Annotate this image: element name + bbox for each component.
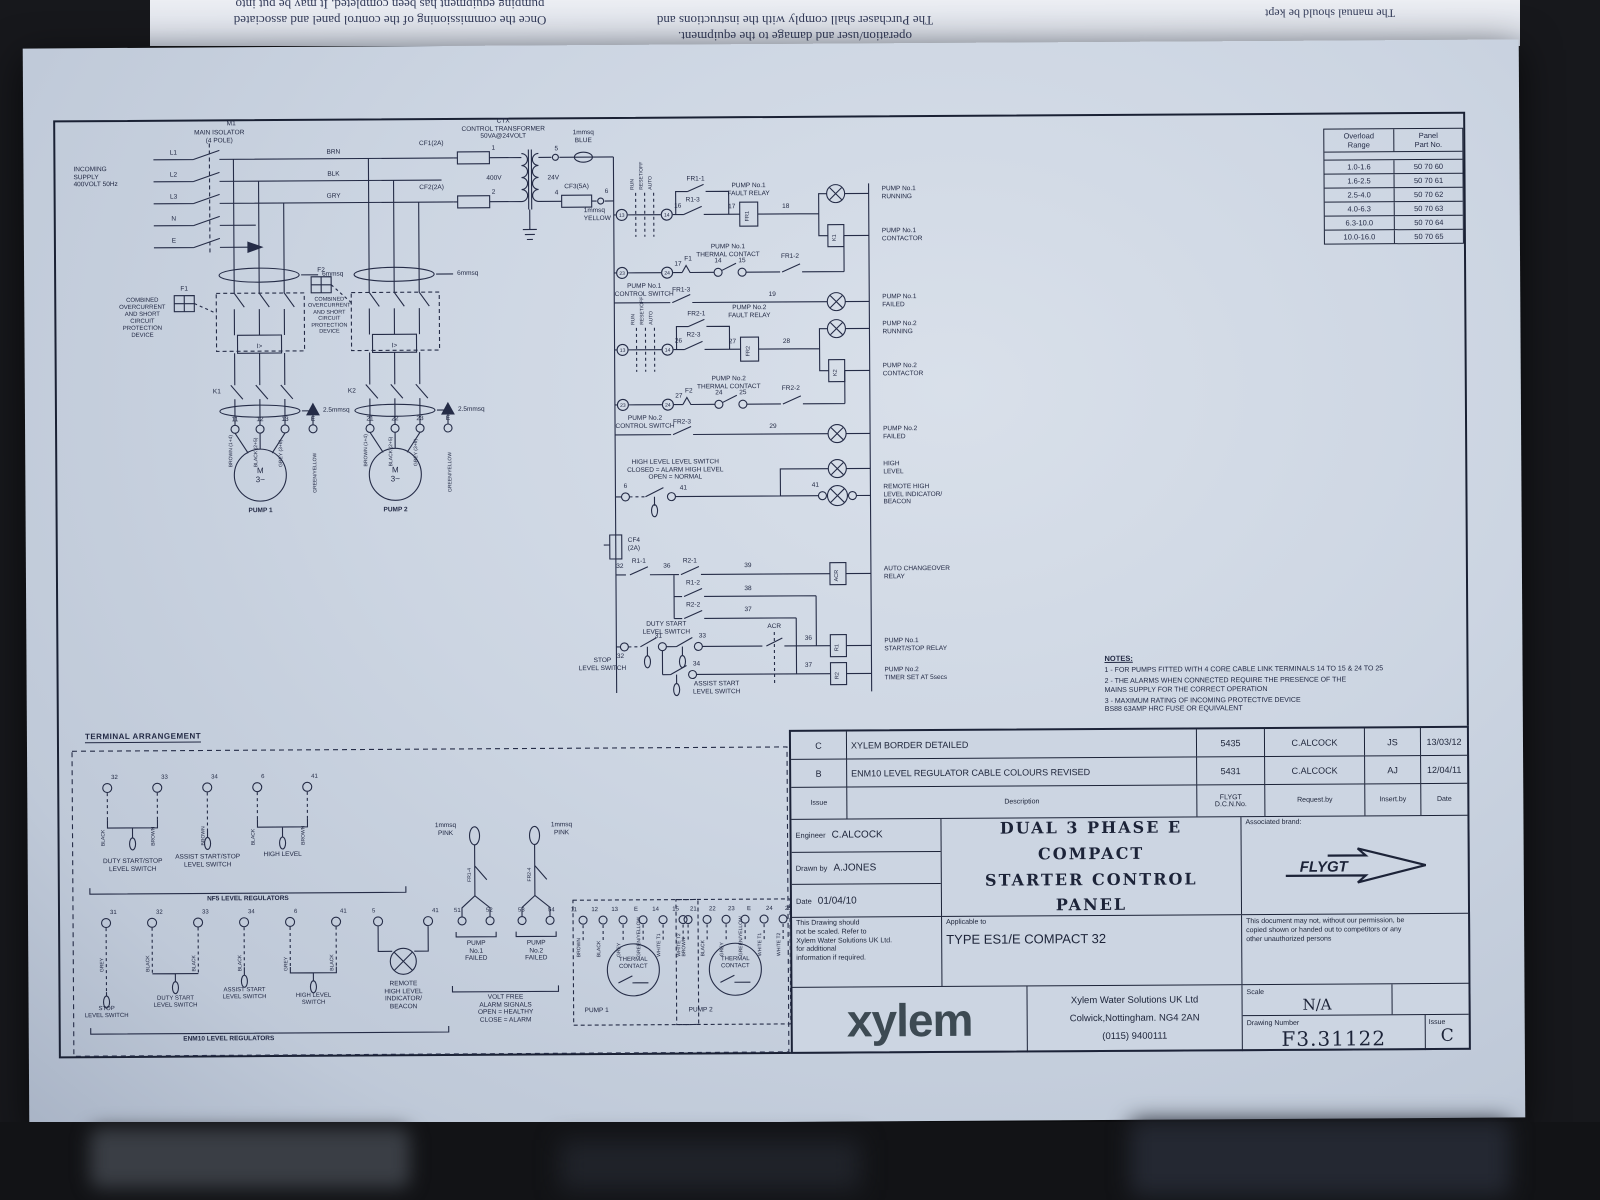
wire-number: 41 (812, 482, 820, 489)
wire-number: 32 (616, 563, 624, 570)
ta-color: BLACK (100, 829, 106, 846)
core-color: BROWN (1+4) (228, 435, 234, 468)
line-l3: L3 (170, 194, 178, 201)
switch-terminal: 14 (665, 348, 671, 354)
wire-number: 36 (805, 635, 813, 642)
cable-size-label: 6mmsq (322, 271, 343, 279)
revision-header-row: Issue Description FLYGT D.C.N.No. Reques… (791, 784, 1467, 820)
yellow-wire-label: 1mmsq YELLOW (584, 207, 611, 222)
ta-color: BROWN (681, 937, 687, 957)
line-l1: L1 (170, 150, 178, 157)
supply-lines (153, 149, 454, 248)
ta-terminal: 32 (156, 910, 163, 916)
output-pump2-running: PUMP No.2 RUNNING (882, 320, 916, 336)
motor-symbol-label: M 3~ (256, 466, 265, 485)
address-line2: Colwick,Nottingham. NG4 2AN (1070, 1009, 1200, 1028)
overload-range: 1.6-2.5 (1325, 174, 1394, 187)
overload-range: 4.0-6.3 (1325, 202, 1394, 215)
company-address-cell: Xylem Water Solutions UK Ltd Colwick,Not… (1027, 985, 1242, 1052)
cable-size-label: 2.5mmsq (323, 407, 350, 415)
output-pump1-failed: PUMP No.1 FAILED (882, 293, 916, 309)
switch-terminal: 23 (620, 403, 626, 409)
high-level-switch-label: HIGH LEVEL SWITCH (296, 993, 331, 1007)
ta-color: BLACK (596, 940, 602, 957)
ta-nf5-group (89, 782, 406, 894)
header-description: Description (847, 785, 1197, 818)
desk-object (90, 1128, 410, 1188)
float-switch-drop (652, 505, 658, 517)
output-pump2-timer: PUMP No.2 TIMER SET AT 5secs (885, 666, 948, 682)
selector-run: RUN (630, 314, 636, 325)
wire-number: 36 (663, 563, 671, 570)
wire-number: 34 (693, 660, 701, 667)
rev-insert-by: AJ (1365, 756, 1421, 783)
associated-brand-cell: Associated brand: FLYGT (1241, 816, 1468, 914)
output-high-level: HIGH LEVEL (883, 460, 903, 475)
core-color: BLACK (2+5) (388, 436, 394, 466)
wire-number: 16 (674, 203, 682, 210)
overload-part: 50 70 64 (1394, 216, 1463, 229)
panel-title-line1: DUAL 3 PHASE E COMPACT (945, 817, 1236, 867)
core-color: GREEN/YELLOW (312, 452, 318, 492)
fuse-cf1 (457, 152, 489, 164)
ta-color: WHITE T1 (757, 933, 763, 956)
engineer-label: Engineer (796, 831, 826, 840)
cable-size-label: 6mmsq (457, 270, 478, 278)
coil-fr2: FR2 (746, 346, 752, 356)
pump2-plug-label: PUMP 2 (689, 1006, 713, 1014)
pump2-failed-voltfree-label: PUMP No.2 FAILED (525, 939, 548, 962)
ctx-wiring (453, 149, 614, 240)
wire-number: 26 (675, 338, 683, 345)
terminal-arrangement-heading: TERMINAL ARRANGEMENT (85, 732, 201, 744)
fuse-cf3-label: CF3(5A) (564, 183, 589, 191)
ta-terminal: 51 (454, 908, 461, 914)
contact-tag: FR1-3 (672, 287, 690, 294)
wire-number: 18 (782, 203, 790, 210)
scale-label: Scale (1246, 989, 1264, 996)
ta-enclosure (72, 747, 789, 1056)
ta-terminal: 33 (161, 775, 168, 781)
date-value: 01/04/10 (818, 895, 857, 906)
incoming-supply-label: INCOMING SUPPLY 400VOLT 50Hz (73, 166, 117, 189)
ta-terminal: 13 (611, 907, 618, 913)
overload-row: 6.3-10.050 70 64 (1325, 215, 1463, 230)
rev-dcn: 5431 (1197, 757, 1265, 784)
primary-voltage: 400V (486, 175, 502, 182)
permission-note: This document may not, without our permi… (1242, 914, 1468, 984)
overload-header-range: Overload Range (1324, 129, 1393, 151)
overload-range: 6.3-10.0 (1325, 216, 1394, 229)
contact-tag: FR1-2 (781, 253, 799, 260)
high-level-label: HIGH LEVEL (263, 851, 301, 859)
nf5-regulators-label: NF5 LEVEL REGULATORS (207, 895, 289, 903)
selector-run: RUN (630, 179, 636, 190)
footer-row: xylem Xylem Water Solutions UK Ltd Colwi… (792, 984, 1468, 1054)
ta-color: BLACK (237, 954, 243, 971)
issue-cell: Issue C (1426, 1015, 1469, 1051)
overload-part: 50 70 65 (1394, 230, 1463, 243)
terminal-number: 4 (555, 189, 559, 196)
terminal-number: 21 (366, 415, 374, 422)
secondary-voltage: 24V (547, 174, 559, 181)
contact-tag: FR2-3 (673, 419, 691, 426)
ta-color: BLACK (700, 939, 706, 956)
applicable-to-value: TYPE ES1/E COMPACT 32 (946, 930, 1237, 947)
core-color: BROWN (1+4) (363, 434, 369, 467)
ta-color: BROWN (576, 938, 582, 958)
assist-start-switch-label: ASSIST START LEVEL SWITCH (223, 987, 267, 1001)
ta-color: BLACK (191, 954, 197, 971)
wire-color-gry: GRY (327, 193, 342, 200)
pink-wire-label: 1mmsq PINK (551, 821, 572, 836)
ta-terminal: 41 (311, 774, 318, 780)
output-pump2-contactor: PUMP No.2 CONTACTOR (883, 362, 924, 378)
associated-brand-label: Associated brand: (1245, 818, 1463, 826)
scale-value: N/A (1247, 995, 1388, 1014)
output-pump1-running: PUMP No.1 RUNNING (882, 185, 916, 201)
contact-tag: FR2-2 (782, 385, 800, 392)
rung-start-stop (616, 636, 871, 675)
rev-date: 12/04/11 (1421, 756, 1467, 783)
terminal-number: 12 (256, 416, 264, 423)
flipped-line: The manual should be kept (1265, 6, 1395, 20)
address-line3: (0115) 9400111 (1070, 1027, 1200, 1046)
switch-terminal: 14 (664, 213, 670, 219)
coil-r2: R2 (835, 672, 841, 679)
float-switch-drop (674, 684, 680, 696)
ta-terminal: 41 (432, 908, 439, 914)
overload-row: 1.0-1.650 70 60 (1324, 159, 1462, 174)
core-color: BLACK (2+5) (253, 437, 259, 467)
ta-terminal: 22 (709, 906, 716, 912)
contact-tag: FR1-1 (686, 175, 704, 182)
blue-wire-label: 1mmsq BLUE (573, 129, 594, 144)
cable-size-label: 2.5mmsq (458, 406, 485, 414)
applicability-row: This Drawing should not be scaled. Refer… (792, 914, 1468, 988)
scale-drawing-stack: Scale N/A Drawing Number F3.31122 Issue … (1242, 984, 1468, 1051)
ta-color: BLACK (145, 955, 151, 972)
output-auto-changeover: AUTO CHANGEOVER RELAY (884, 565, 950, 581)
duty-start-switch-label: DUTY START LEVEL SWITCH (154, 996, 198, 1010)
wire-number: 27 (675, 393, 683, 400)
rev-dcn: 5435 (1197, 729, 1265, 756)
rev-description: ENM10 LEVEL REGULATOR CABLE COLOURS REVI… (847, 757, 1197, 786)
switch-terminal: 13 (620, 348, 626, 354)
float-switch-drop (679, 656, 685, 668)
motor-symbol-label: M 3~ (391, 465, 400, 484)
overload-row: 2.5-4.050 70 62 (1325, 187, 1463, 202)
stop-level-switch-label: STOP LEVEL SWITCH (579, 657, 627, 673)
terminal-number: E (446, 415, 451, 422)
wire-number: 17 (728, 203, 736, 210)
flipped-text-center: operation/user and damage to the equipme… (570, 13, 1020, 44)
header-request-by: Request.by (1265, 784, 1365, 816)
f1-tag: F1 (180, 286, 188, 293)
flipped-text-right: The manual should be kept (1170, 6, 1490, 20)
drawing-number-value: F3.31122 (1247, 1026, 1421, 1051)
overload-header-part: Panel Part No. (1393, 129, 1462, 151)
note-item: 1 - FOR PUMPS FITTED WITH 4 CORE CABLE L… (1105, 665, 1465, 676)
overload-part: 50 70 62 (1394, 188, 1463, 201)
flipped-line: pumping equipment has been completed. It… (235, 0, 544, 13)
rev-description: XYLEM BORDER DETAILED (847, 729, 1197, 758)
selector-auto: AUTO (648, 176, 654, 190)
ta-color: BROWN (300, 825, 306, 845)
ta-color: BLACK (250, 828, 256, 845)
flygt-logo-text: FLYGT (1300, 858, 1350, 875)
overload-part: 50 70 60 (1393, 160, 1462, 173)
desk-object (560, 1140, 860, 1190)
ta-terminal: 6 (261, 774, 265, 780)
overload-range: 10.0-16.0 (1325, 230, 1394, 243)
notes-heading: NOTES: (1104, 652, 1464, 664)
pump2-fault-relay-label: PUMP No.2 FAULT RELAY (728, 304, 770, 320)
coil-acr: ACR (834, 570, 840, 582)
overload-row: 4.0-6.350 70 63 (1325, 201, 1463, 216)
terminal-number: 11 (232, 416, 239, 423)
applicable-to-label: Applicable to (946, 917, 1237, 926)
coil-fr1: FR1 (745, 211, 751, 221)
issue-value: C (1429, 1026, 1466, 1046)
schematic-paper: L1 L2 L3 N E BRN BLK GRY M1 F1 F2 I> I> … (23, 39, 1526, 1126)
scale-empty-cell (1392, 984, 1468, 1014)
contact-tag: R1-2 (686, 579, 701, 586)
rev-insert-by: JS (1365, 728, 1421, 755)
ta-terminal: 54 (548, 907, 555, 913)
line-n: N (171, 216, 176, 223)
overload-table: Overload RangePanel Part No. 1.0-1.650 7… (1323, 128, 1464, 245)
relay-coils (740, 202, 847, 686)
address-line1: Xylem Water Solutions UK Ltd (1070, 991, 1200, 1010)
revision-row-b: B ENM10 LEVEL REGULATOR CABLE COLOURS RE… (791, 756, 1467, 788)
panel-title-line2: STARTER CONTROL PANEL (946, 866, 1237, 916)
ta-color: BLACK (329, 954, 335, 971)
rung-p2-main (614, 318, 869, 372)
ta-terminal: 33 (202, 909, 209, 915)
contactor-k1-tag: K1 (213, 388, 221, 395)
ctx-terminal (598, 198, 604, 204)
ta-terminal: 23 (728, 906, 735, 912)
overcurrent-symbol: I> (257, 343, 263, 350)
scale-cell: Scale N/A (1242, 984, 1392, 1015)
flipped-line: Once the commissioning of the control pa… (234, 13, 547, 28)
fuse-cf2-label: CF2(2A) (419, 184, 444, 192)
stop-level-switch-label: STOP LEVEL SWITCH (85, 1006, 129, 1020)
main-isolator-label: MAIN ISOLATOR (4 POLE) (194, 129, 244, 145)
contact-tag: ACR (767, 623, 781, 630)
contact-tag: FR1-4 (467, 868, 473, 882)
coil-k1: K1 (832, 234, 838, 241)
switch-terminal: 13 (619, 213, 625, 219)
note-item: 2 - THE ALARMS WHEN CONNECTED REQUIRE TH… (1105, 676, 1465, 696)
flipped-line: operation/user and damage to the equipme… (678, 29, 912, 44)
ctx-terminal (552, 154, 558, 160)
pump2-thermal-label: PUMP No.2 THERMAL CONTACT (697, 375, 761, 391)
overload-part: 50 70 61 (1394, 174, 1463, 187)
selector-resetoff: RESET/OFF (638, 162, 644, 190)
wire-color-brn: BRN (326, 149, 340, 156)
ta-color: GREY (616, 942, 622, 957)
ta-voltfree-group (451, 826, 558, 992)
terminal-number: E (311, 416, 316, 423)
flygt-logo: FLYGT (1280, 844, 1430, 887)
contact-tag: FR2-4 (527, 867, 533, 881)
output-pump1-contactor: PUMP No.1 CONTACTOR (882, 227, 923, 243)
wire-number: 19 (769, 291, 777, 298)
overload-row: 10.0-16.050 70 65 (1325, 229, 1463, 244)
ta-color: WHITE T1 (656, 933, 662, 956)
wire-number: 39 (744, 562, 752, 569)
earth-arrow (248, 242, 262, 252)
terminal-number: 2 (492, 189, 496, 196)
terminal-number: 6 (605, 188, 609, 195)
overload-part: 50 70 63 (1394, 202, 1463, 215)
header-date: Date (1421, 784, 1467, 815)
flipped-line: The Purchaser shall comply with the inst… (657, 14, 933, 29)
voltfree-alarm-label: VOLT FREE ALARM SIGNALS OPEN = HEALTHY C… (478, 993, 534, 1024)
revision-row-c: C XYLEM BORDER DETAILED 5435 C.ALCOCK JS… (791, 728, 1467, 760)
terminal-number: 13 (281, 416, 289, 423)
ta-terminal: 32 (111, 775, 118, 781)
ta-terminal: 53 (518, 908, 525, 914)
photo-backdrop: Once the commissioning of the control pa… (0, 0, 1600, 1200)
rev-request-by: C.ALCOCK (1265, 756, 1365, 784)
contact-tag: FR2-1 (687, 310, 705, 317)
isolator-ref: M1 (227, 120, 236, 127)
contactor-k2-tag: K2 (348, 388, 356, 395)
contact-tag: R1-1 (632, 558, 647, 565)
core-color: GREEN/YELLOW (447, 452, 453, 492)
rev-date: 13/03/12 (1421, 728, 1467, 755)
ta-terminal: 41 (340, 909, 347, 915)
ta-color: GREEN/YELLOW (738, 916, 744, 956)
protection-device-label: COMBINED OVERCURRENT AND SHORT CIRCUIT P… (119, 298, 166, 341)
ta-terminal: E (634, 907, 638, 913)
ta-terminal: 12 (591, 907, 598, 913)
coil-k2: K2 (833, 369, 839, 376)
terminal-number: 22 (391, 415, 399, 422)
header-dcn: FLYGT D.C.N.No. (1197, 785, 1265, 816)
wire-number: 17 (674, 261, 682, 268)
ta-color: BROWN (200, 826, 206, 846)
line-l2: L2 (170, 172, 178, 179)
ta-terminal: 52 (486, 908, 493, 914)
contact-tag: R2-2 (686, 601, 701, 608)
isolator-link (209, 143, 210, 255)
pump2-label: PUMP 2 (383, 506, 407, 514)
pump1-thermal-label: PUMP No.1 THERMAL CONTACT (696, 243, 760, 259)
overload-range: 2.5-4.0 (1325, 188, 1394, 201)
output-pump1-startstop-relay: PUMP No.1 START/STOP RELAY (884, 637, 947, 653)
wire-color-blk: BLK (327, 171, 340, 178)
wire-number: 6 (624, 483, 628, 490)
rev-issue: C (791, 732, 847, 759)
rev-request-by: C.ALCOCK (1265, 728, 1365, 756)
note-item: 3 - MAXIMUM RATING OF INCOMING PROTECTIV… (1105, 695, 1465, 715)
ta-terminal: 34 (211, 774, 218, 780)
ta-beacon-group (374, 917, 433, 975)
wire-number: 27 (729, 338, 737, 345)
xylem-logo-cell: xylem (792, 986, 1027, 1053)
thermal-contact-label: THERMAL CONTACT (619, 957, 648, 971)
contact-tag: R2-3 (686, 331, 701, 338)
switch-terminal: 23 (619, 271, 625, 277)
coil-r1: R1 (834, 644, 840, 651)
pink-wire-label: 1mmsq PINK (435, 822, 456, 837)
header-issue: Issue (791, 788, 847, 819)
ta-color: GREEN/YELLOW (636, 917, 642, 957)
control-transformer-label: CTX CONTROL TRANSFORMER 50VA@24VOLT (461, 117, 545, 140)
title-block: C XYLEM BORDER DETAILED 5435 C.ALCOCK JS… (789, 726, 1471, 1054)
float-switch-drop (644, 656, 650, 668)
selector-auto: AUTO (648, 311, 654, 325)
overload-row: 1.6-2.550 70 61 (1325, 173, 1463, 188)
ta-terminal: 31 (110, 910, 117, 916)
fuse-cf4-label: CF4 (2A) (628, 537, 640, 552)
contact-tag: R2-1 (683, 557, 698, 564)
ta-color: WHITE T2 (776, 932, 782, 955)
ta-terminal: 11 (571, 907, 578, 913)
drawn-by-stack: EngineerC.ALCOCK Drawn byA.JONES Date01/… (791, 819, 942, 917)
ta-color: GREY (99, 957, 105, 972)
pump1-fault-relay-label: PUMP No.1 FAULT RELAY (727, 182, 769, 198)
output-remote-beacon: REMOTE HIGH LEVEL INDICATOR/ BEACON (883, 483, 942, 506)
overload-range: 1.0-1.6 (1324, 160, 1393, 173)
ta-color: GREY (719, 941, 725, 956)
wire-number: 41 (680, 485, 688, 492)
enm10-regulators-label: ENM10 LEVEL REGULATORS (183, 1035, 274, 1043)
panel-title: DUAL 3 PHASE E COMPACT STARTER CONTROL P… (941, 817, 1242, 916)
pump1-failed-voltfree-label: PUMP No.1 FAILED (465, 940, 488, 963)
ta-color: GREY (283, 956, 289, 971)
drawn-by-value: A.JONES (833, 862, 876, 873)
ta-terminal: 21 (690, 906, 697, 912)
flipped-text-left: Once the commissioning of the control pa… (180, 0, 600, 28)
fuse-cf3 (562, 195, 592, 207)
ta-terminal: E (747, 906, 751, 912)
selector-resetoff: RESET/OFF (639, 297, 645, 325)
pump1-plug-label: PUMP 1 (585, 1007, 609, 1015)
wire-number: 37 (745, 606, 753, 613)
output-pump2-failed: PUMP No.2 FAILED (883, 425, 917, 441)
wire-number: 38 (744, 585, 752, 592)
wire-number: 29 (769, 423, 777, 430)
terminal-number: 1 (492, 145, 496, 152)
ta-enm10-group (90, 916, 449, 1034)
pump1-control-switch-label: PUMP No.1 CONTROL SWITCH (615, 283, 674, 299)
ta-terminal: 5 (372, 908, 376, 914)
ta-terminal: 34 (248, 909, 255, 915)
switch-terminal: 24 (665, 403, 671, 409)
switch-terminal: 24 (664, 271, 670, 277)
assist-start-switch-label: ASSIST START LEVEL SWITCH (693, 680, 741, 696)
no-scale-note: This Drawing should not be scaled. Refer… (792, 917, 942, 987)
xylem-wordmark: xylem (847, 993, 973, 1048)
contact-tag: R1-3 (686, 196, 701, 203)
core-color: GREY (3+6) (278, 439, 284, 467)
date-label: Date (796, 896, 812, 905)
high-level-switch-label: HIGH LEVEL LEVEL SWITCH CLOSED = ALARM H… (627, 458, 723, 482)
duty-start-switch-label: DUTY START LEVEL SWITCH (643, 621, 691, 637)
protection-device-label: COMBINED OVERCURRENT AND SHORT CIRCUIT P… (308, 297, 351, 336)
desk-object (1130, 1120, 1510, 1196)
drawn-by-label: Drawn by (796, 864, 828, 873)
wire-number: 33 (699, 632, 707, 639)
pump2-control-switch-label: PUMP No.2 CONTROL SWITCH (615, 415, 674, 431)
applicable-to-cell: Applicable to TYPE ES1/E COMPACT 32 (942, 915, 1242, 986)
pump1-label: PUMP 1 (248, 507, 272, 515)
